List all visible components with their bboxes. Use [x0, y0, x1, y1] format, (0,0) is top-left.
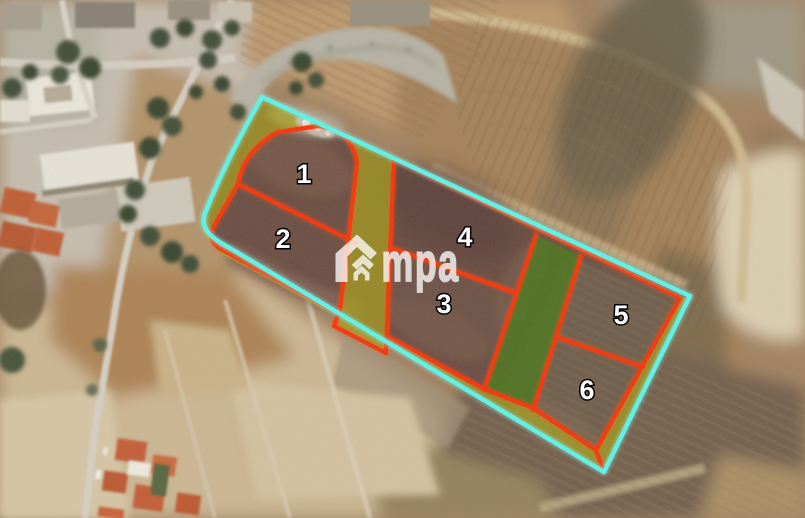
svg-text:mpa: mpa	[382, 233, 460, 293]
svg-text:6: 6	[579, 375, 594, 405]
svg-text:3: 3	[436, 289, 451, 319]
svg-text:2: 2	[275, 224, 290, 254]
svg-text:5: 5	[613, 300, 628, 330]
svg-text:1: 1	[296, 159, 311, 189]
